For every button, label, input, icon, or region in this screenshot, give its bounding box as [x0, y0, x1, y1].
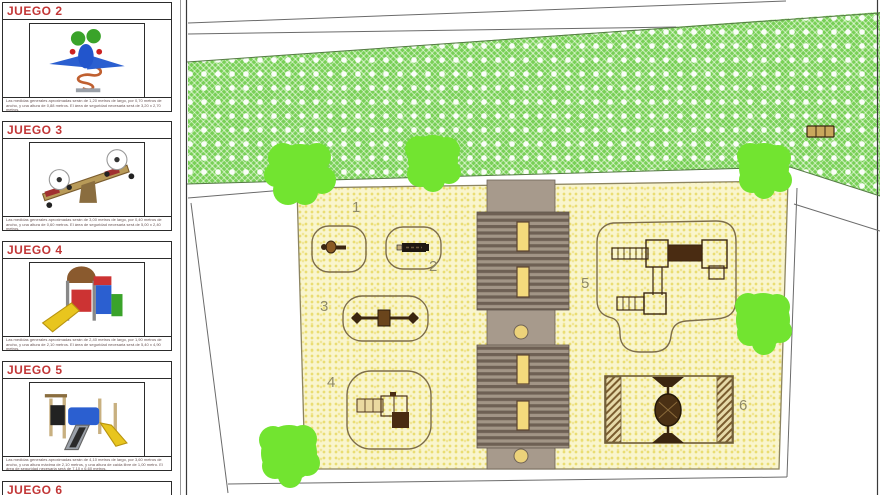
multiplay-small-symbol — [357, 392, 409, 428]
playground-plan-sheet: JUEGO 2 Las medidas generales aproximada… — [0, 0, 880, 495]
zone-6-label: 6 — [739, 397, 747, 414]
carousel-symbol — [606, 377, 732, 443]
site-plan-drawing — [0, 0, 880, 495]
tree-icon — [737, 143, 792, 199]
tree-icon — [259, 425, 320, 488]
zone-2-label: 2 — [429, 258, 437, 275]
rocker-symbol — [397, 243, 429, 252]
multiplay-large-symbol — [612, 240, 727, 314]
tree-icon — [264, 143, 336, 205]
zone-3-label: 3 — [320, 298, 328, 315]
spring-rider-symbol — [321, 241, 346, 253]
bench-symbol — [807, 126, 834, 137]
zone-4-label: 4 — [327, 374, 335, 391]
pergola-walkway — [477, 180, 569, 469]
tree-icon — [405, 135, 461, 192]
zone-1-label: 1 — [352, 199, 360, 216]
seesaw-symbol — [351, 310, 419, 326]
zone-5-label: 5 — [581, 275, 589, 292]
walkway-feature-circle — [514, 449, 528, 463]
walkway-feature-circle — [514, 325, 528, 339]
